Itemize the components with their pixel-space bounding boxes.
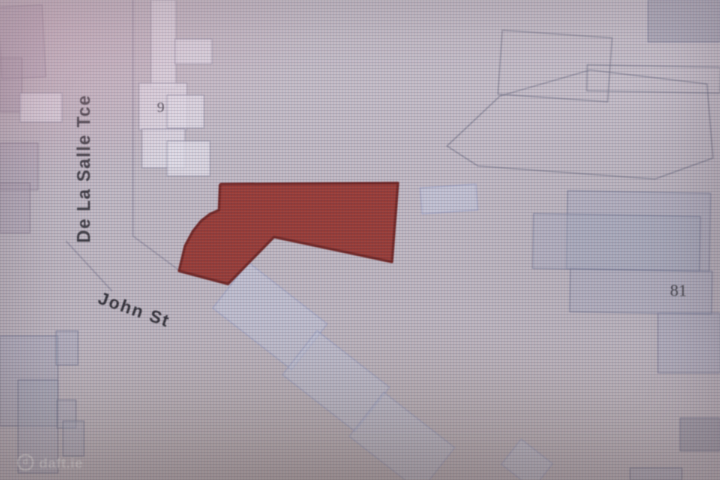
building xyxy=(151,0,176,88)
highlighted-property[interactable] xyxy=(179,183,398,284)
road-edge-john-st-edge xyxy=(66,241,112,291)
building xyxy=(20,93,62,122)
building xyxy=(420,184,478,214)
building xyxy=(63,421,84,456)
building xyxy=(630,468,682,480)
daft-watermark-text: daft.ie xyxy=(39,455,83,471)
building xyxy=(175,39,212,64)
building xyxy=(0,58,22,112)
building-outline xyxy=(587,65,720,93)
building xyxy=(680,418,720,451)
building xyxy=(648,0,720,42)
building xyxy=(533,214,701,272)
building xyxy=(167,95,204,128)
street-label-de-la-salle-tce: De La Salle Tce xyxy=(74,94,94,243)
building xyxy=(167,141,210,176)
street-label-john-st: John St xyxy=(96,288,173,331)
parcel-outline xyxy=(447,70,713,179)
building-number-no-9: 9 xyxy=(157,100,165,116)
map-view: De La Salle TceJohn St981 daft.ie xyxy=(0,0,720,480)
building xyxy=(0,183,30,233)
daft-logo-icon xyxy=(17,454,34,471)
building xyxy=(501,439,552,480)
building xyxy=(658,313,720,373)
building xyxy=(570,269,713,314)
daft-watermark: daft.ie xyxy=(17,454,83,471)
map-canvas[interactable]: De La Salle TceJohn St981 xyxy=(0,0,720,480)
building-number-no-81: 81 xyxy=(670,281,687,300)
building xyxy=(56,331,78,365)
